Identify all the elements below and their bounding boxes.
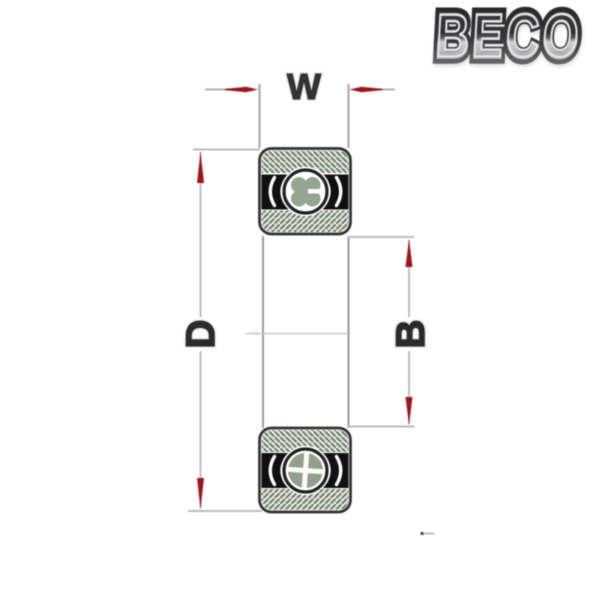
svg-text:D: D <box>179 320 223 349</box>
svg-text:C: C <box>505 2 542 70</box>
svg-text:E: E <box>471 2 505 70</box>
svg-text:B: B <box>389 320 433 349</box>
svg-text:B: B <box>434 2 471 70</box>
svg-text:O: O <box>541 2 580 70</box>
svg-text:W: W <box>287 66 321 107</box>
